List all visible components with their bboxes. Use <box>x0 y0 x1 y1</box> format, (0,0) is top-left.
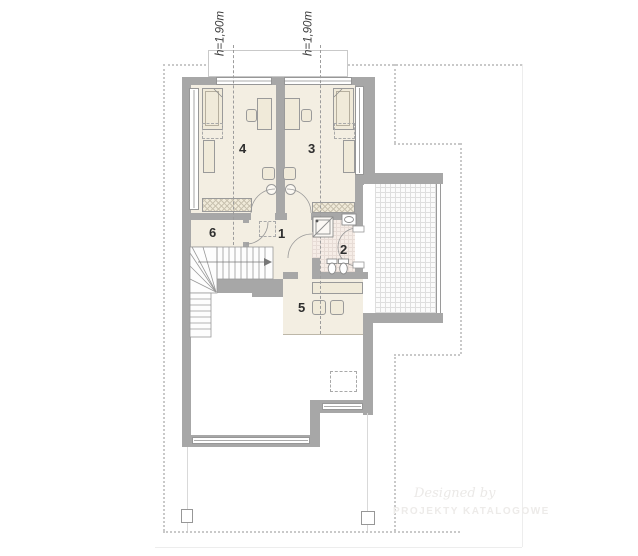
wall-bath-right-lower <box>355 266 363 279</box>
room-label-6: 6 <box>209 225 216 240</box>
roof-outline-right <box>460 143 462 354</box>
dresser-symbol-room3 <box>343 140 355 173</box>
roof-outline-right-lower <box>394 354 396 531</box>
headroom-line-left <box>233 45 234 250</box>
wall-room5-right <box>363 323 373 403</box>
headroom-line-right <box>320 45 321 334</box>
chair-symbol-room4 <box>246 109 257 122</box>
wall-room6-stub-bottom <box>243 242 249 247</box>
skylight-marker <box>330 371 357 392</box>
room-3-door-opening <box>287 213 311 220</box>
wall-corridor-stub <box>283 272 298 279</box>
window-top-right <box>284 77 352 85</box>
room-4-door-opening <box>251 213 275 220</box>
lamp-symbol-room4 <box>266 184 277 195</box>
roof-outline-left <box>163 64 165 531</box>
window-top-left <box>216 77 272 85</box>
wall-stair-landing <box>217 279 283 293</box>
headroom-label-left: h=1,90m <box>215 8 228 60</box>
wall-bath-top <box>311 213 355 220</box>
bed-mattress-room3 <box>336 91 350 126</box>
window-right <box>355 86 364 175</box>
void-edge-line <box>283 334 363 335</box>
room-label-2: 2 <box>340 242 347 257</box>
dashed-storage-room4 <box>202 123 223 139</box>
chair-symbol-room5-a <box>312 300 326 315</box>
post-symbol-right <box>361 511 375 525</box>
balcony-railing <box>436 184 441 313</box>
balcony-floor <box>375 184 437 313</box>
stool-symbol-room3 <box>283 167 296 180</box>
roof-outline-bottom <box>163 531 460 533</box>
wall-stair-landing-step <box>252 293 283 297</box>
lamp-symbol-room3 <box>285 184 296 195</box>
wall-hall-top-left <box>190 213 251 220</box>
room-label-3: 3 <box>308 141 315 156</box>
wall-right-outer <box>363 77 375 184</box>
stool-symbol-room4 <box>262 167 275 180</box>
wall-bath-left-upper <box>312 220 320 232</box>
window-bottom-right <box>322 403 363 410</box>
wall-balcony-top <box>363 173 443 184</box>
room-label-4: 4 <box>239 141 246 156</box>
room-2-door-opening <box>312 232 320 258</box>
chair-symbol-room5-b <box>330 300 344 315</box>
height-label-box <box>208 50 348 77</box>
stair-lower-treads <box>190 299 211 329</box>
wall-balcony-bottom <box>363 313 443 323</box>
desk-symbol-room3 <box>284 98 300 130</box>
room-2-floor <box>320 220 355 272</box>
stair-direction-arrow <box>198 258 272 266</box>
bed-mattress-room4 <box>205 91 219 126</box>
window-bottom <box>192 437 310 444</box>
room-label-1: 1 <box>278 226 285 241</box>
wardrobe-symbol-room4 <box>202 198 252 212</box>
attic-hatch-marker <box>259 221 276 237</box>
roof-outline-step-bottom <box>394 354 460 356</box>
extension-line-right <box>522 64 523 547</box>
wall-bath-right-upper <box>355 184 363 228</box>
stair-winders <box>190 247 216 292</box>
roof-outline-step-top <box>394 143 460 145</box>
dashed-storage-room3 <box>334 123 355 139</box>
watermark-designed-by: Designed by <box>414 486 495 501</box>
window-left <box>189 88 199 210</box>
floor-plan-canvas: h=1,90m h=1,90m 1 2 3 4 5 6 Designed by … <box>0 0 638 556</box>
headroom-label-right: h=1,90m <box>303 8 316 60</box>
watermark-studio-name: PROJEKTY KATALOGOWE <box>393 506 550 517</box>
dresser-symbol-room4 <box>203 140 215 173</box>
wall-bath-left-lower <box>312 258 320 272</box>
wall-right-above-window <box>355 77 364 86</box>
wardrobe-symbol-room3 <box>312 202 355 213</box>
roof-outline-right-upper <box>394 64 396 143</box>
room-6-door-opening <box>243 223 249 242</box>
desk-symbol-room4 <box>257 98 272 130</box>
wall-hall-top-center <box>275 213 287 220</box>
extension-line-bottom <box>155 547 522 548</box>
post-symbol-left <box>181 509 193 523</box>
wall-room6-stub-top <box>243 220 249 223</box>
stair-treads <box>217 247 265 279</box>
chair-symbol-room3 <box>301 109 312 122</box>
room-label-5: 5 <box>298 300 305 315</box>
